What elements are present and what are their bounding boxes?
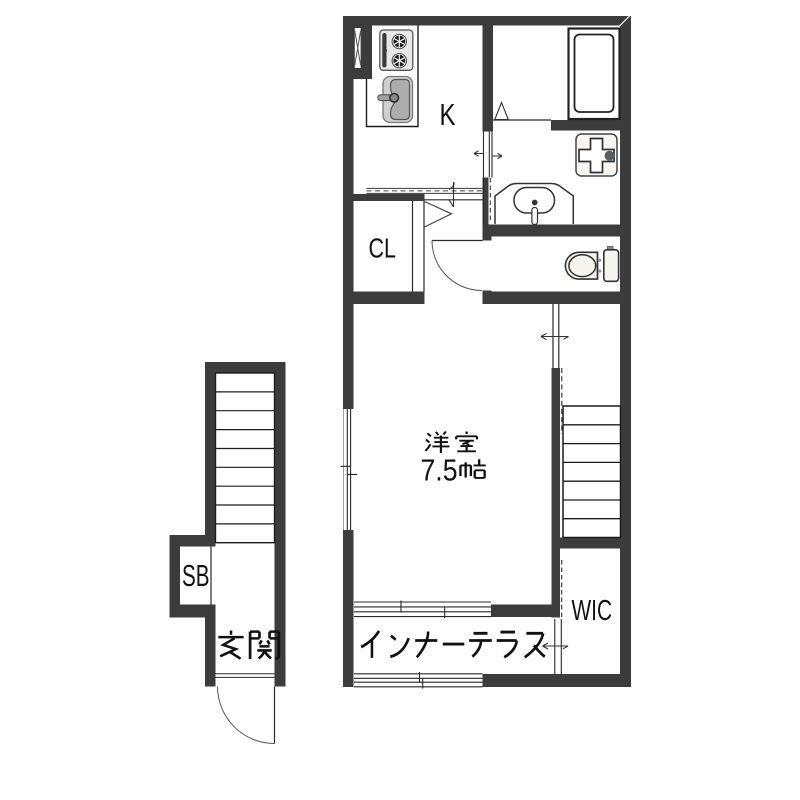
svg-text:K: K	[440, 97, 456, 132]
svg-text:CL: CL	[369, 233, 397, 264]
svg-text:SB: SB	[182, 558, 210, 593]
svg-text:WIC: WIC	[572, 595, 613, 627]
svg-text:7.5: 7.5	[421, 453, 458, 488]
